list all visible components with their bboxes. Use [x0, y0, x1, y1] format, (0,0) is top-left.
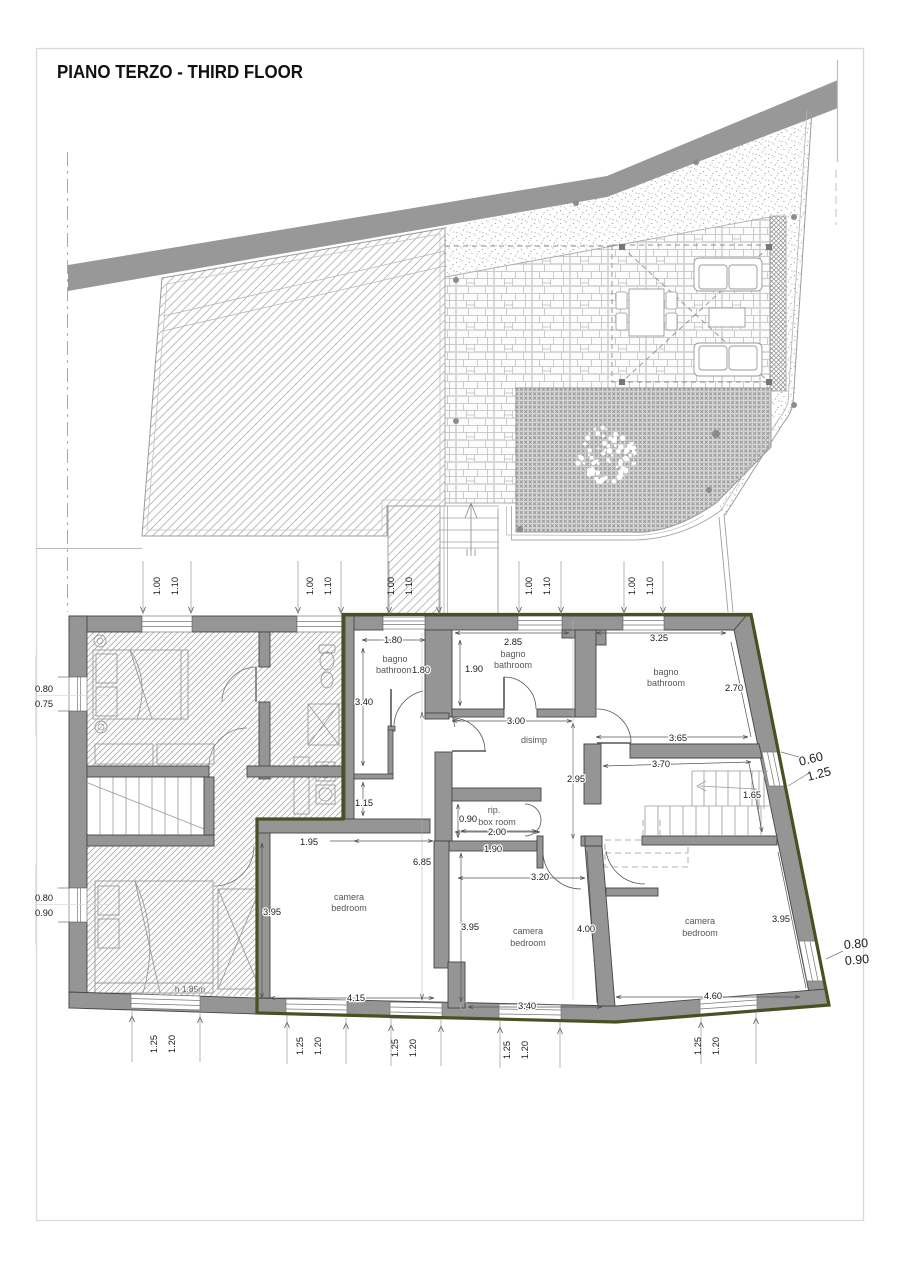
svg-text:1.20: 1.20: [520, 1041, 530, 1059]
svg-text:bedroom: bedroom: [682, 928, 718, 938]
svg-text:2.00: 2.00: [488, 827, 506, 837]
svg-text:3.20: 3.20: [531, 872, 549, 882]
svg-text:box room: box room: [478, 817, 516, 827]
svg-text:1.00: 1.00: [305, 577, 315, 595]
svg-text:1.15: 1.15: [355, 798, 373, 808]
svg-text:3.40: 3.40: [518, 1001, 536, 1011]
svg-text:1.10: 1.10: [542, 577, 552, 595]
svg-text:0.90: 0.90: [35, 908, 53, 918]
svg-text:1.25: 1.25: [149, 1035, 159, 1053]
svg-text:disimp: disimp: [521, 735, 547, 745]
svg-text:bedroom: bedroom: [510, 938, 546, 948]
svg-text:1.65: 1.65: [743, 790, 761, 800]
svg-text:h 1.85m: h 1.85m: [175, 984, 205, 994]
svg-text:camera: camera: [685, 916, 715, 926]
svg-text:1.25: 1.25: [502, 1041, 512, 1059]
svg-text:bagno: bagno: [382, 654, 407, 664]
svg-text:bagno: bagno: [500, 649, 525, 659]
svg-text:1.00: 1.00: [152, 577, 162, 595]
svg-text:3.95: 3.95: [461, 922, 479, 932]
svg-text:1.10: 1.10: [645, 577, 655, 595]
svg-text:4.15: 4.15: [347, 993, 365, 1003]
svg-text:0.90: 0.90: [844, 952, 870, 968]
svg-text:1.00: 1.00: [524, 577, 534, 595]
svg-text:6.85: 6.85: [413, 857, 431, 867]
svg-text:bathroom: bathroom: [647, 678, 685, 688]
svg-text:0.90: 0.90: [459, 814, 477, 824]
svg-text:1.25: 1.25: [693, 1037, 703, 1055]
svg-text:camera: camera: [513, 926, 543, 936]
svg-text:2.95: 2.95: [567, 774, 585, 784]
svg-text:1.20: 1.20: [167, 1035, 177, 1053]
svg-text:3.25: 3.25: [650, 633, 668, 643]
svg-text:bathroom: bathroom: [376, 665, 414, 675]
svg-text:3.00: 3.00: [507, 716, 525, 726]
svg-text:0.80: 0.80: [35, 684, 53, 694]
svg-text:1.20: 1.20: [313, 1037, 323, 1055]
svg-text:PIANO TERZO - THIRD FLOOR: PIANO TERZO - THIRD FLOOR: [57, 62, 303, 82]
svg-text:4.60: 4.60: [704, 991, 722, 1001]
svg-text:0.80: 0.80: [35, 893, 53, 903]
svg-text:1.95: 1.95: [300, 837, 318, 847]
svg-text:1.00: 1.00: [386, 577, 396, 595]
svg-text:bedroom: bedroom: [331, 903, 367, 913]
svg-text:1.10: 1.10: [323, 577, 333, 595]
svg-text:rip.: rip.: [488, 805, 501, 815]
svg-text:1.90: 1.90: [465, 664, 483, 674]
svg-text:bagno: bagno: [653, 667, 678, 677]
svg-text:bathroom: bathroom: [494, 660, 532, 670]
svg-text:3.95: 3.95: [263, 907, 281, 917]
svg-text:1.80: 1.80: [412, 665, 430, 675]
svg-text:3.40: 3.40: [355, 697, 373, 707]
svg-text:4.00: 4.00: [577, 924, 595, 934]
svg-text:2.85: 2.85: [504, 637, 522, 647]
svg-text:1.80: 1.80: [384, 635, 402, 645]
svg-text:1.10: 1.10: [404, 577, 414, 595]
svg-text:3.95: 3.95: [772, 914, 790, 924]
svg-text:3.70: 3.70: [652, 759, 670, 769]
svg-text:0.80: 0.80: [843, 936, 869, 952]
svg-text:1.20: 1.20: [408, 1039, 418, 1057]
svg-text:1.25: 1.25: [295, 1037, 305, 1055]
svg-text:1.00: 1.00: [627, 577, 637, 595]
svg-text:1.10: 1.10: [170, 577, 180, 595]
svg-text:1.90: 1.90: [484, 844, 502, 854]
svg-text:2.70: 2.70: [725, 683, 743, 693]
svg-text:1.25: 1.25: [390, 1039, 400, 1057]
svg-text:camera: camera: [334, 892, 364, 902]
svg-text:0.75: 0.75: [35, 699, 53, 709]
svg-text:1.20: 1.20: [711, 1037, 721, 1055]
svg-text:3.65: 3.65: [669, 733, 687, 743]
